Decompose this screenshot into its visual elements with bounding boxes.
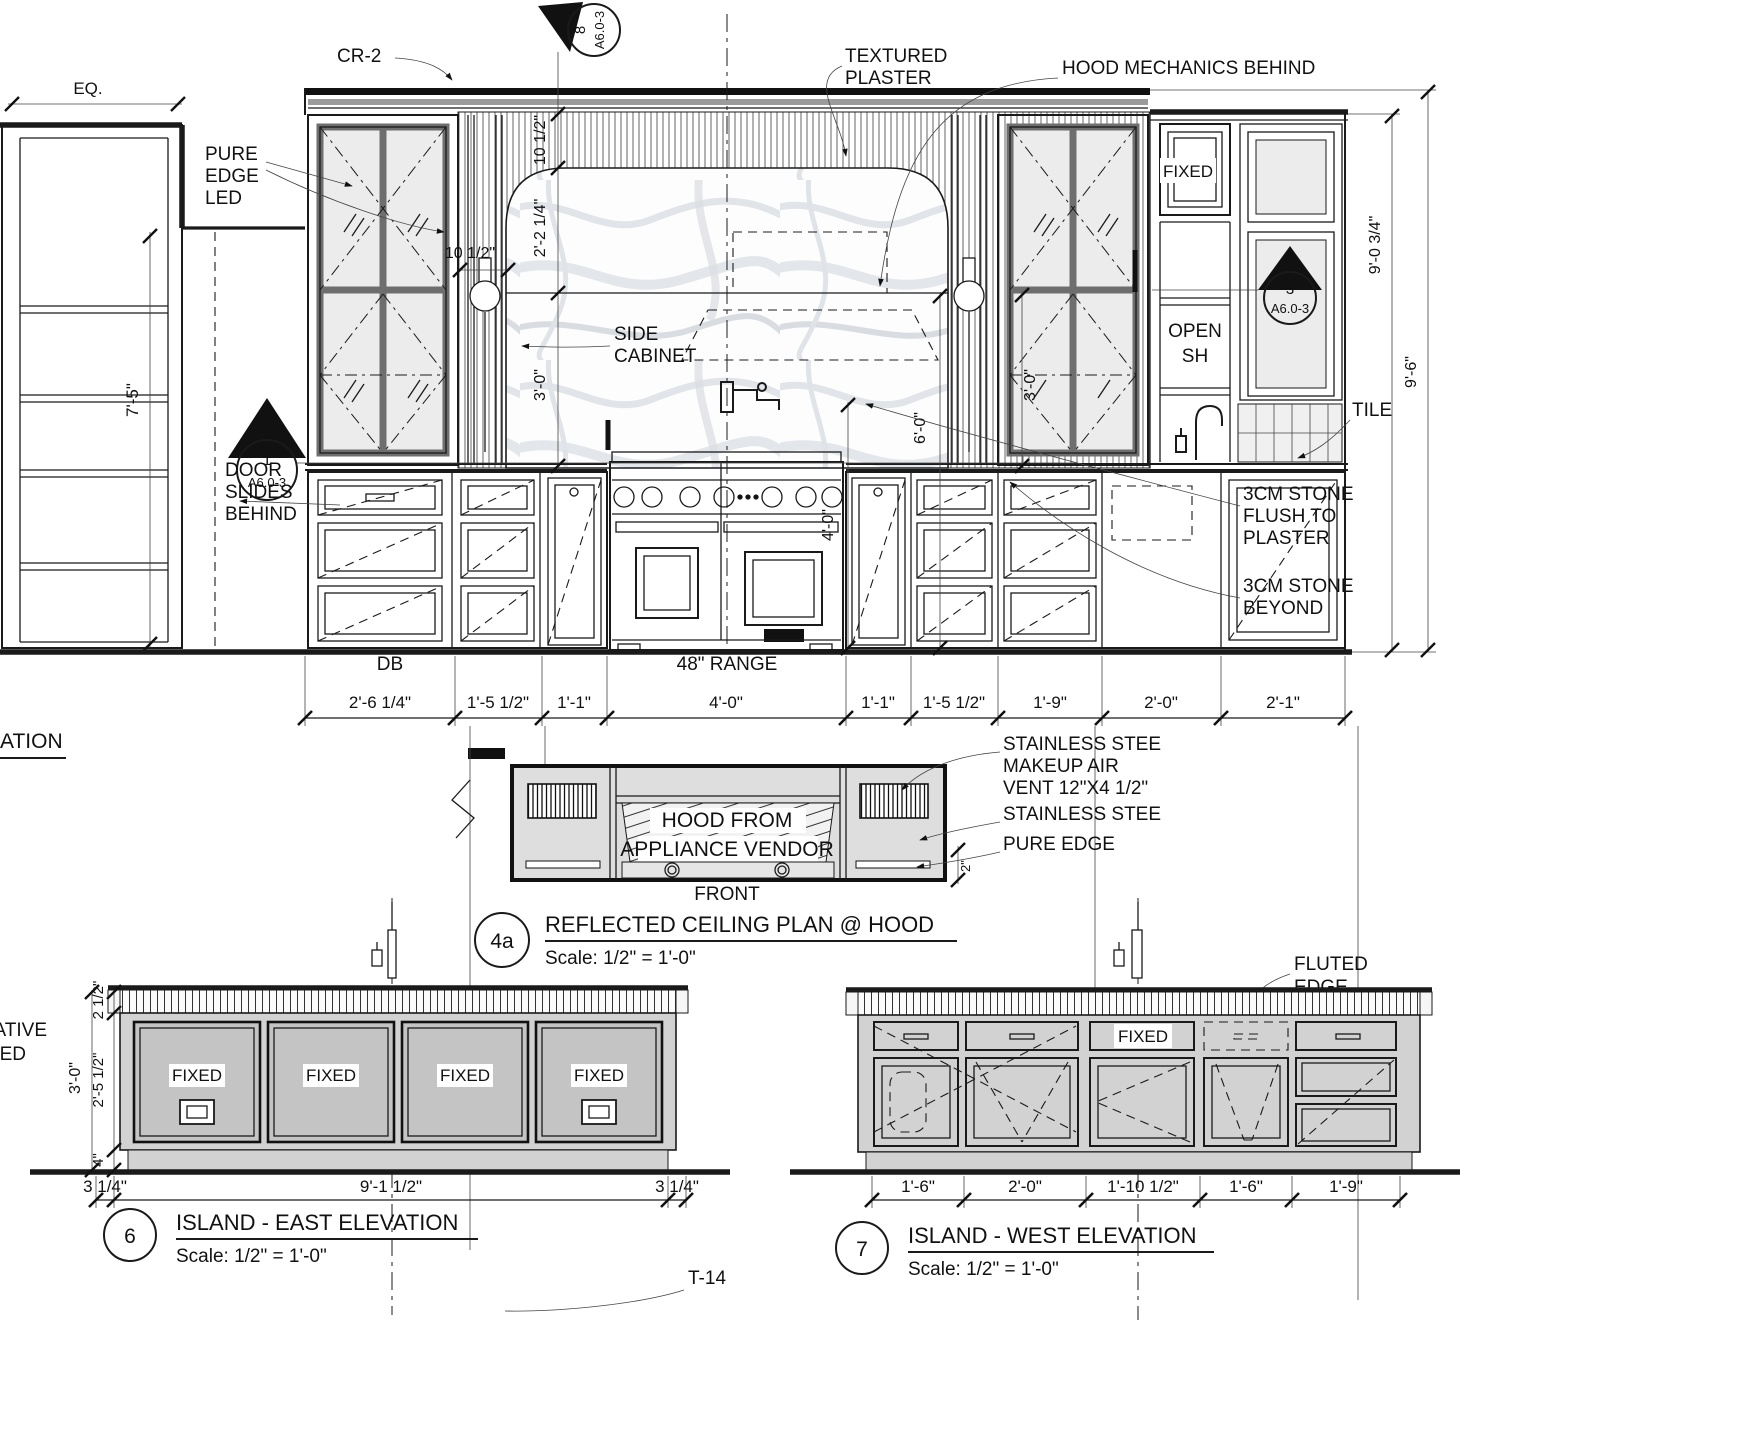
fixed-label: FIXED — [1163, 162, 1213, 181]
architectural-drawing-sheet: EQ. 7'-5" — [0, 0, 1740, 1440]
stone-flush-3: PLASTER — [1243, 528, 1330, 549]
pure-edge-led-1: PURE — [205, 144, 258, 165]
east-dim-overall: 3'-0" — [67, 1062, 84, 1094]
left-glass-cabinet — [308, 115, 458, 465]
makeup-air-2: MAKEUP AIR — [1003, 756, 1119, 777]
west-title-num: 7 — [856, 1238, 868, 1261]
marker-sheet: A6.0-3 — [592, 11, 607, 49]
west-bdim-2: 1'-10 1/2" — [1107, 1177, 1179, 1196]
fluted-edge-label-1: FLUTED — [1294, 954, 1368, 975]
dim-8: 2'-1" — [1266, 693, 1300, 712]
dim-2: 1'-1" — [557, 693, 591, 712]
hood-mechanics-label: HOOD MECHANICS BEHIND — [1062, 58, 1315, 79]
sink-faucet — [1176, 406, 1222, 460]
front-label: FRONT — [694, 884, 760, 905]
marker-sheet: A6.0-3 — [1271, 301, 1309, 316]
east-fixed-1: FIXED — [172, 1066, 222, 1085]
cab-to-arch-dim: 10 1/2" — [445, 245, 495, 262]
hood-from-label-2: APPLIANCE VENDOR — [620, 838, 834, 861]
height-dim-2: 9'-6" — [1403, 356, 1420, 388]
west-bottom-dims: 1'-6" 2'-0" 1'-10 1/2" 1'-6" 1'-9" — [865, 1176, 1407, 1208]
eq-dim: EQ. — [73, 79, 102, 98]
t14-tag: T-14 — [505, 1268, 726, 1311]
dim-0: 2'-6 1/4" — [349, 693, 411, 712]
db-label: DB — [377, 654, 403, 675]
east-fixed-4: FIXED — [574, 1066, 624, 1085]
west-bdim-3: 1'-6" — [1229, 1177, 1263, 1196]
west-scale-text: Scale: 1/2" = 1'-0" — [908, 1259, 1059, 1280]
bottom-dimension-row: 2'-6 1/4" 1'-5 1/2" 1'-1" 4'-0" 1'-1" 1'… — [298, 656, 1352, 726]
west-title-text: ISLAND - WEST ELEVATION — [908, 1223, 1197, 1248]
left-height-dim: 7'-5" — [123, 383, 142, 417]
rcp-title: 4a REFLECTED CEILING PLAN @ HOOD Scale: … — [475, 912, 957, 969]
sconce-light — [954, 281, 984, 311]
arch-to-hood-dim: 2'-2 1/4" — [532, 199, 549, 258]
drawing-canvas: EQ. 7'-5" — [0, 0, 1740, 1440]
sink-dashed — [1112, 486, 1192, 540]
makeup-air-vent-right — [860, 784, 928, 818]
east-title-text: ISLAND - EAST ELEVATION — [176, 1210, 458, 1235]
detail-marker-3: 3 A6.0-3 — [1152, 246, 1322, 324]
break-line — [452, 780, 474, 838]
left-partial-cabinet: EQ. 7'-5" — [0, 79, 305, 651]
east-fluted-top — [110, 990, 686, 1013]
svg-text:ATION: ATION — [0, 730, 63, 753]
east-bdim-2: 3 1/4" — [655, 1177, 699, 1196]
west-fixed-label: FIXED — [1118, 1027, 1168, 1046]
makeup-air-3: VENT 12"X4 1/2" — [1003, 778, 1148, 799]
east-fixed-3: FIXED — [440, 1066, 490, 1085]
pure-edge-led-3: LED — [205, 188, 242, 209]
east-faucet — [372, 902, 396, 978]
marker-number: 8 — [572, 26, 589, 34]
hood-light-band — [622, 862, 834, 878]
east-toekick — [128, 1150, 668, 1170]
east-bdim-0: 3 1/4" — [83, 1177, 127, 1196]
dim-5: 1'-5 1/2" — [923, 693, 985, 712]
west-toekick — [866, 1152, 1412, 1170]
backsplash-right-dim: 3'-0" — [1022, 369, 1039, 401]
east-fixed-2: FIXED — [306, 1066, 356, 1085]
east-dim-base: 4" — [90, 1153, 107, 1167]
east-bottom-dims: 3 1/4" 9'-1 1/2" 3 1/4" — [83, 1176, 699, 1208]
open-shelf-label-2: SH — [1182, 346, 1208, 367]
island-west-elevation: FLUTED EDGE FIXED — [790, 898, 1460, 1320]
left-base-cabinets — [308, 472, 607, 648]
tile-label: TILE — [1352, 400, 1392, 421]
stone-flush-1: 3CM STONE — [1243, 484, 1354, 505]
west-fluted-top — [848, 992, 1430, 1015]
sconce-light — [470, 281, 500, 311]
makeup-air-1: STAINLESS STEE — [1003, 734, 1161, 755]
textured-plaster-2: PLASTER — [845, 68, 932, 89]
west-title: 7 ISLAND - WEST ELEVATION Scale: 1/2" = … — [836, 1222, 1214, 1280]
stone-flush-2: FLUSH TO — [1243, 506, 1336, 527]
shelf-lines — [20, 306, 168, 642]
rcp-scale-text: Scale: 1/2" = 1'-0" — [545, 948, 696, 969]
range-label: 48" RANGE — [677, 654, 778, 675]
svg-text:2": 2" — [958, 860, 973, 872]
potfiller-height-text: 4'-0" — [820, 509, 837, 541]
rcp-title-text: REFLECTED CEILING PLAN @ HOOD — [545, 912, 934, 937]
door-slides-2: SLIDES — [225, 482, 293, 503]
east-bdim-1: 9'-1 1/2" — [360, 1177, 422, 1196]
dim-3: 4'-0" — [709, 693, 743, 712]
rcp-title-num: 4a — [490, 930, 514, 953]
right-hutch: FIXED OPEN SH — [1150, 112, 1348, 652]
east-partial-text-1: ATIVE — [0, 1020, 47, 1041]
partial-drawing-title: ATION — [0, 730, 66, 758]
east-dim-top: 2 1/2" — [90, 981, 107, 1020]
stone-beyond-1: 3CM STONE — [1243, 576, 1354, 597]
detail-marker-8: 8 A6.0-3 — [538, 2, 620, 112]
east-title-num: 6 — [124, 1225, 136, 1248]
right-glass-cabinet — [998, 115, 1148, 465]
height-dim-1: 9'-0 3/4" — [1367, 216, 1384, 275]
east-partial-text-2: ED — [0, 1044, 26, 1065]
east-dim-mid: 2'-5 1/2" — [90, 1053, 107, 1108]
dim-7: 2'-0" — [1144, 693, 1178, 712]
east-title: 6 ISLAND - EAST ELEVATION Scale: 1/2" = … — [104, 1209, 478, 1267]
led-strip-left — [526, 861, 600, 868]
side-cabinet-label-1: SIDE — [614, 324, 658, 345]
door-slides-3: BEHIND — [225, 504, 297, 525]
backsplash-left-dim: 3'-0" — [532, 369, 549, 401]
stainless-label: STAINLESS STEE — [1003, 804, 1161, 825]
dim-1: 1'-5 1/2" — [467, 693, 529, 712]
edge-dim: 2" — [951, 843, 973, 887]
hood-from-label-1: HOOD FROM — [662, 809, 793, 832]
cr2-label: CR-2 — [337, 46, 381, 67]
door-slides-1: DOOR — [225, 460, 282, 481]
pure-edge-label: PURE EDGE — [1003, 834, 1115, 855]
side-cabinet-label-2: CABINET — [614, 346, 697, 367]
marker-number: 3 — [1286, 281, 1294, 298]
west-faucet — [1114, 902, 1142, 978]
hood-height-text: 6'-0" — [912, 412, 929, 444]
open-shelf-label-1: OPEN — [1168, 321, 1222, 342]
west-bdim-0: 1'-6" — [901, 1177, 935, 1196]
west-bdim-4: 1'-9" — [1329, 1177, 1363, 1196]
east-scale-text: Scale: 1/2" = 1'-0" — [176, 1246, 327, 1267]
svg-text:T-14: T-14 — [688, 1268, 726, 1289]
pure-edge-led-2: EDGE — [205, 166, 259, 187]
stone-beyond-2: BEYOND — [1243, 598, 1323, 619]
crown-to-arch-dim: 10 1/2" — [532, 115, 549, 165]
west-bdim-1: 2'-0" — [1008, 1177, 1042, 1196]
dim-4: 1'-1" — [861, 693, 895, 712]
range-knobs — [614, 487, 842, 507]
makeup-air-vent-left — [528, 784, 596, 818]
dim-6: 1'-9" — [1033, 693, 1067, 712]
section-poche — [468, 748, 505, 759]
textured-plaster-1: TEXTURED — [845, 46, 947, 67]
reflected-ceiling-plan: HOOD FROM APPLIANCE VENDOR FRONT 2" STAI… — [452, 734, 1161, 969]
